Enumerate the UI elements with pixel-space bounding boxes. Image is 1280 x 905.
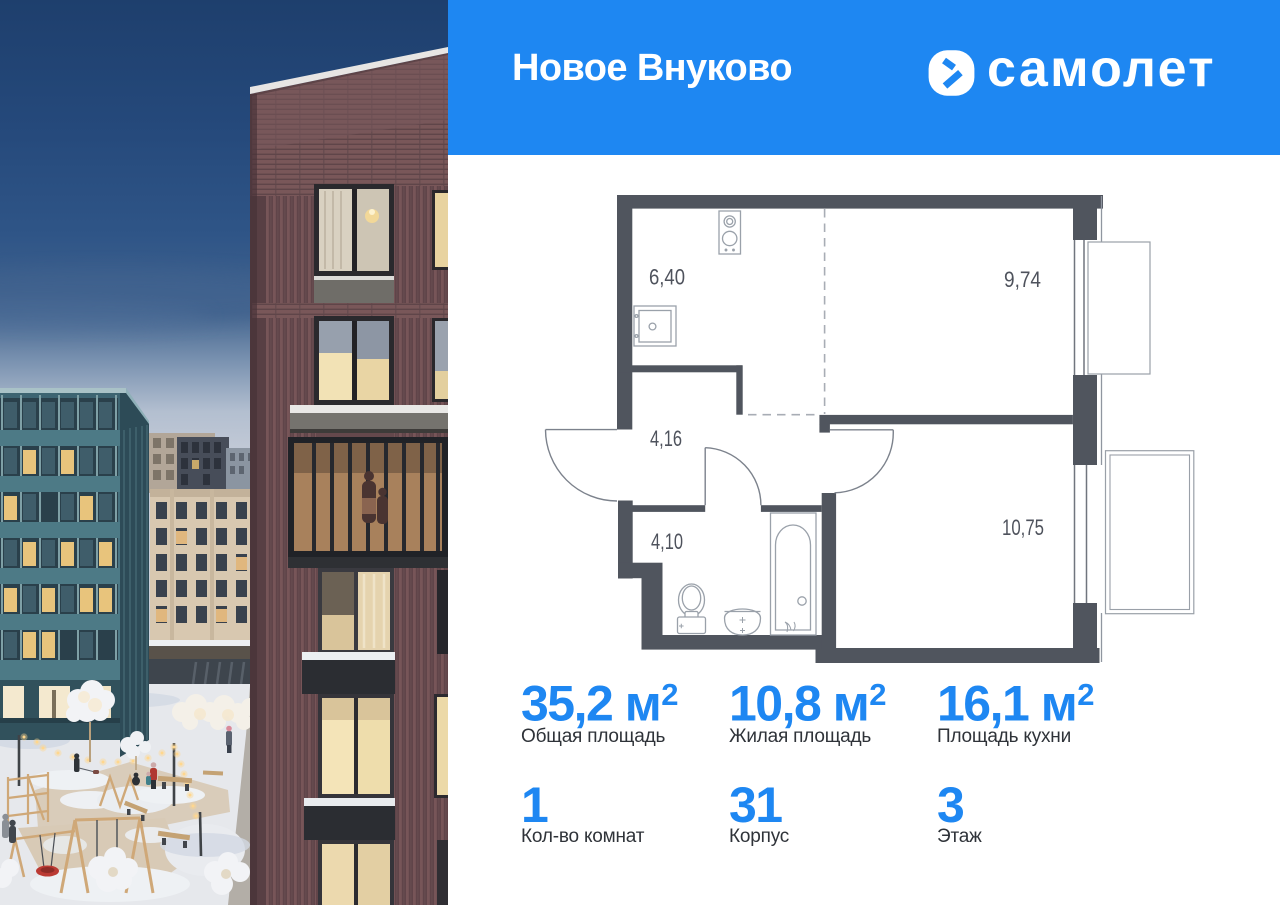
svg-text:9,74: 9,74	[1004, 267, 1041, 292]
svg-text:10,75: 10,75	[1002, 515, 1044, 540]
svg-text:6,40: 6,40	[649, 265, 685, 290]
svg-text:4,16: 4,16	[650, 426, 682, 451]
svg-text:4,10: 4,10	[651, 529, 683, 554]
